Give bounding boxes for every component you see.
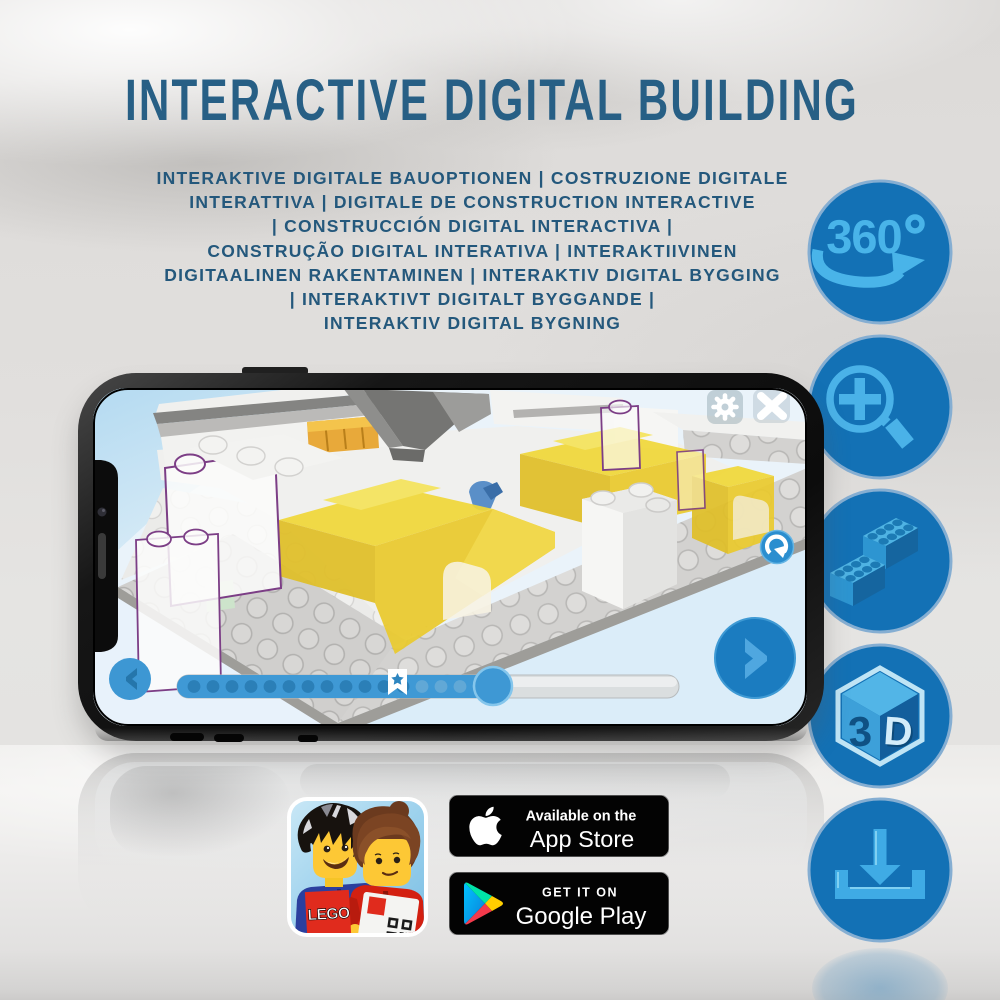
svg-text:Google Play: Google Play <box>516 903 647 930</box>
svg-text:3: 3 <box>847 707 874 756</box>
svg-text:INTERACTIVE DIGITAL BUILDING: INTERACTIVE DIGITAL BUILDING <box>125 68 859 133</box>
svg-text:GET IT ON: GET IT ON <box>542 886 618 900</box>
svg-text:Available on the: Available on the <box>526 809 637 825</box>
svg-text:App Store: App Store <box>530 826 635 852</box>
svg-text:360: 360 <box>826 210 901 263</box>
svg-text:D: D <box>882 709 914 755</box>
svg-text:LEGO: LEGO <box>307 905 350 924</box>
